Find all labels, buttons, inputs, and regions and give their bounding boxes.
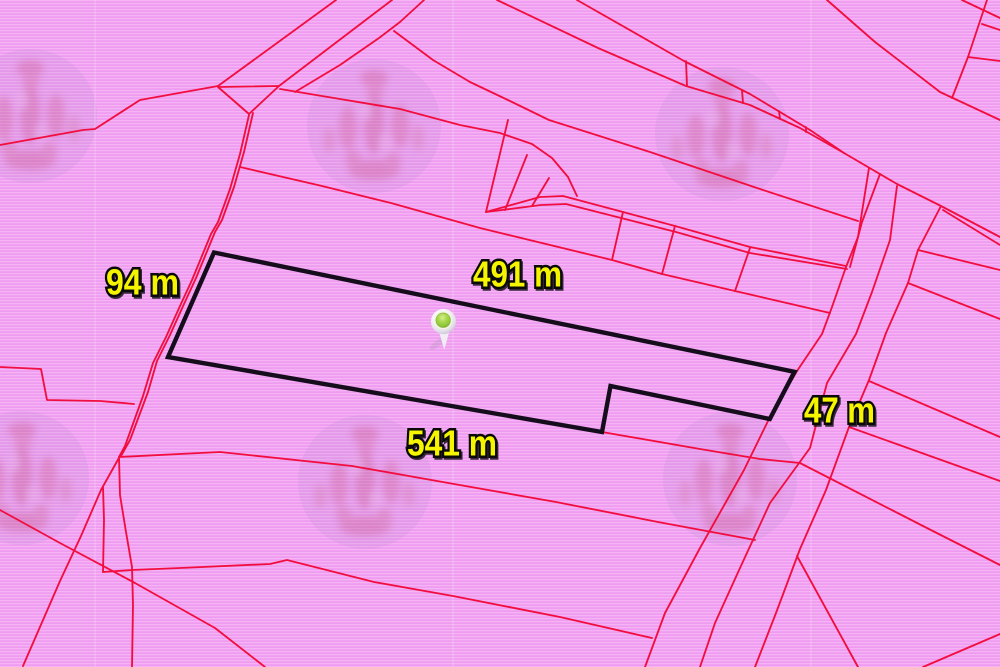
- svg-text:491 m: 491 m: [473, 254, 562, 295]
- svg-text:47 m: 47 m: [804, 390, 875, 431]
- svg-text:94 m: 94 m: [106, 262, 179, 303]
- svg-text:541 m: 541 m: [407, 423, 497, 464]
